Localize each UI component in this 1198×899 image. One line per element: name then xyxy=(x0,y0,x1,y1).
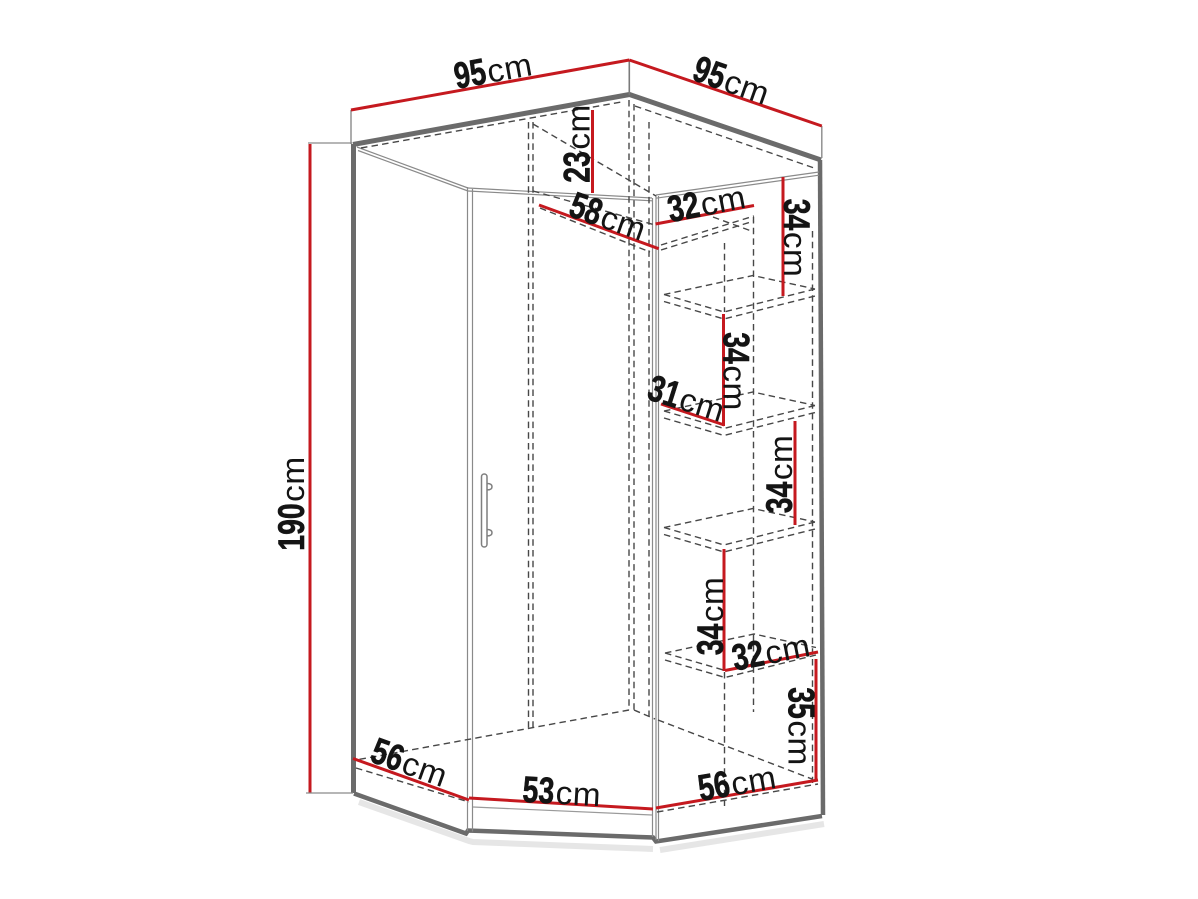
svg-text:34cm: 34cm xyxy=(776,199,817,278)
svg-text:34cm: 34cm xyxy=(690,577,731,656)
svg-text:35cm: 35cm xyxy=(781,687,822,766)
svg-text:23cm: 23cm xyxy=(557,104,598,183)
svg-text:190cm: 190cm xyxy=(271,456,312,550)
svg-text:34cm: 34cm xyxy=(759,435,800,514)
svg-text:53cm: 53cm xyxy=(522,769,603,814)
